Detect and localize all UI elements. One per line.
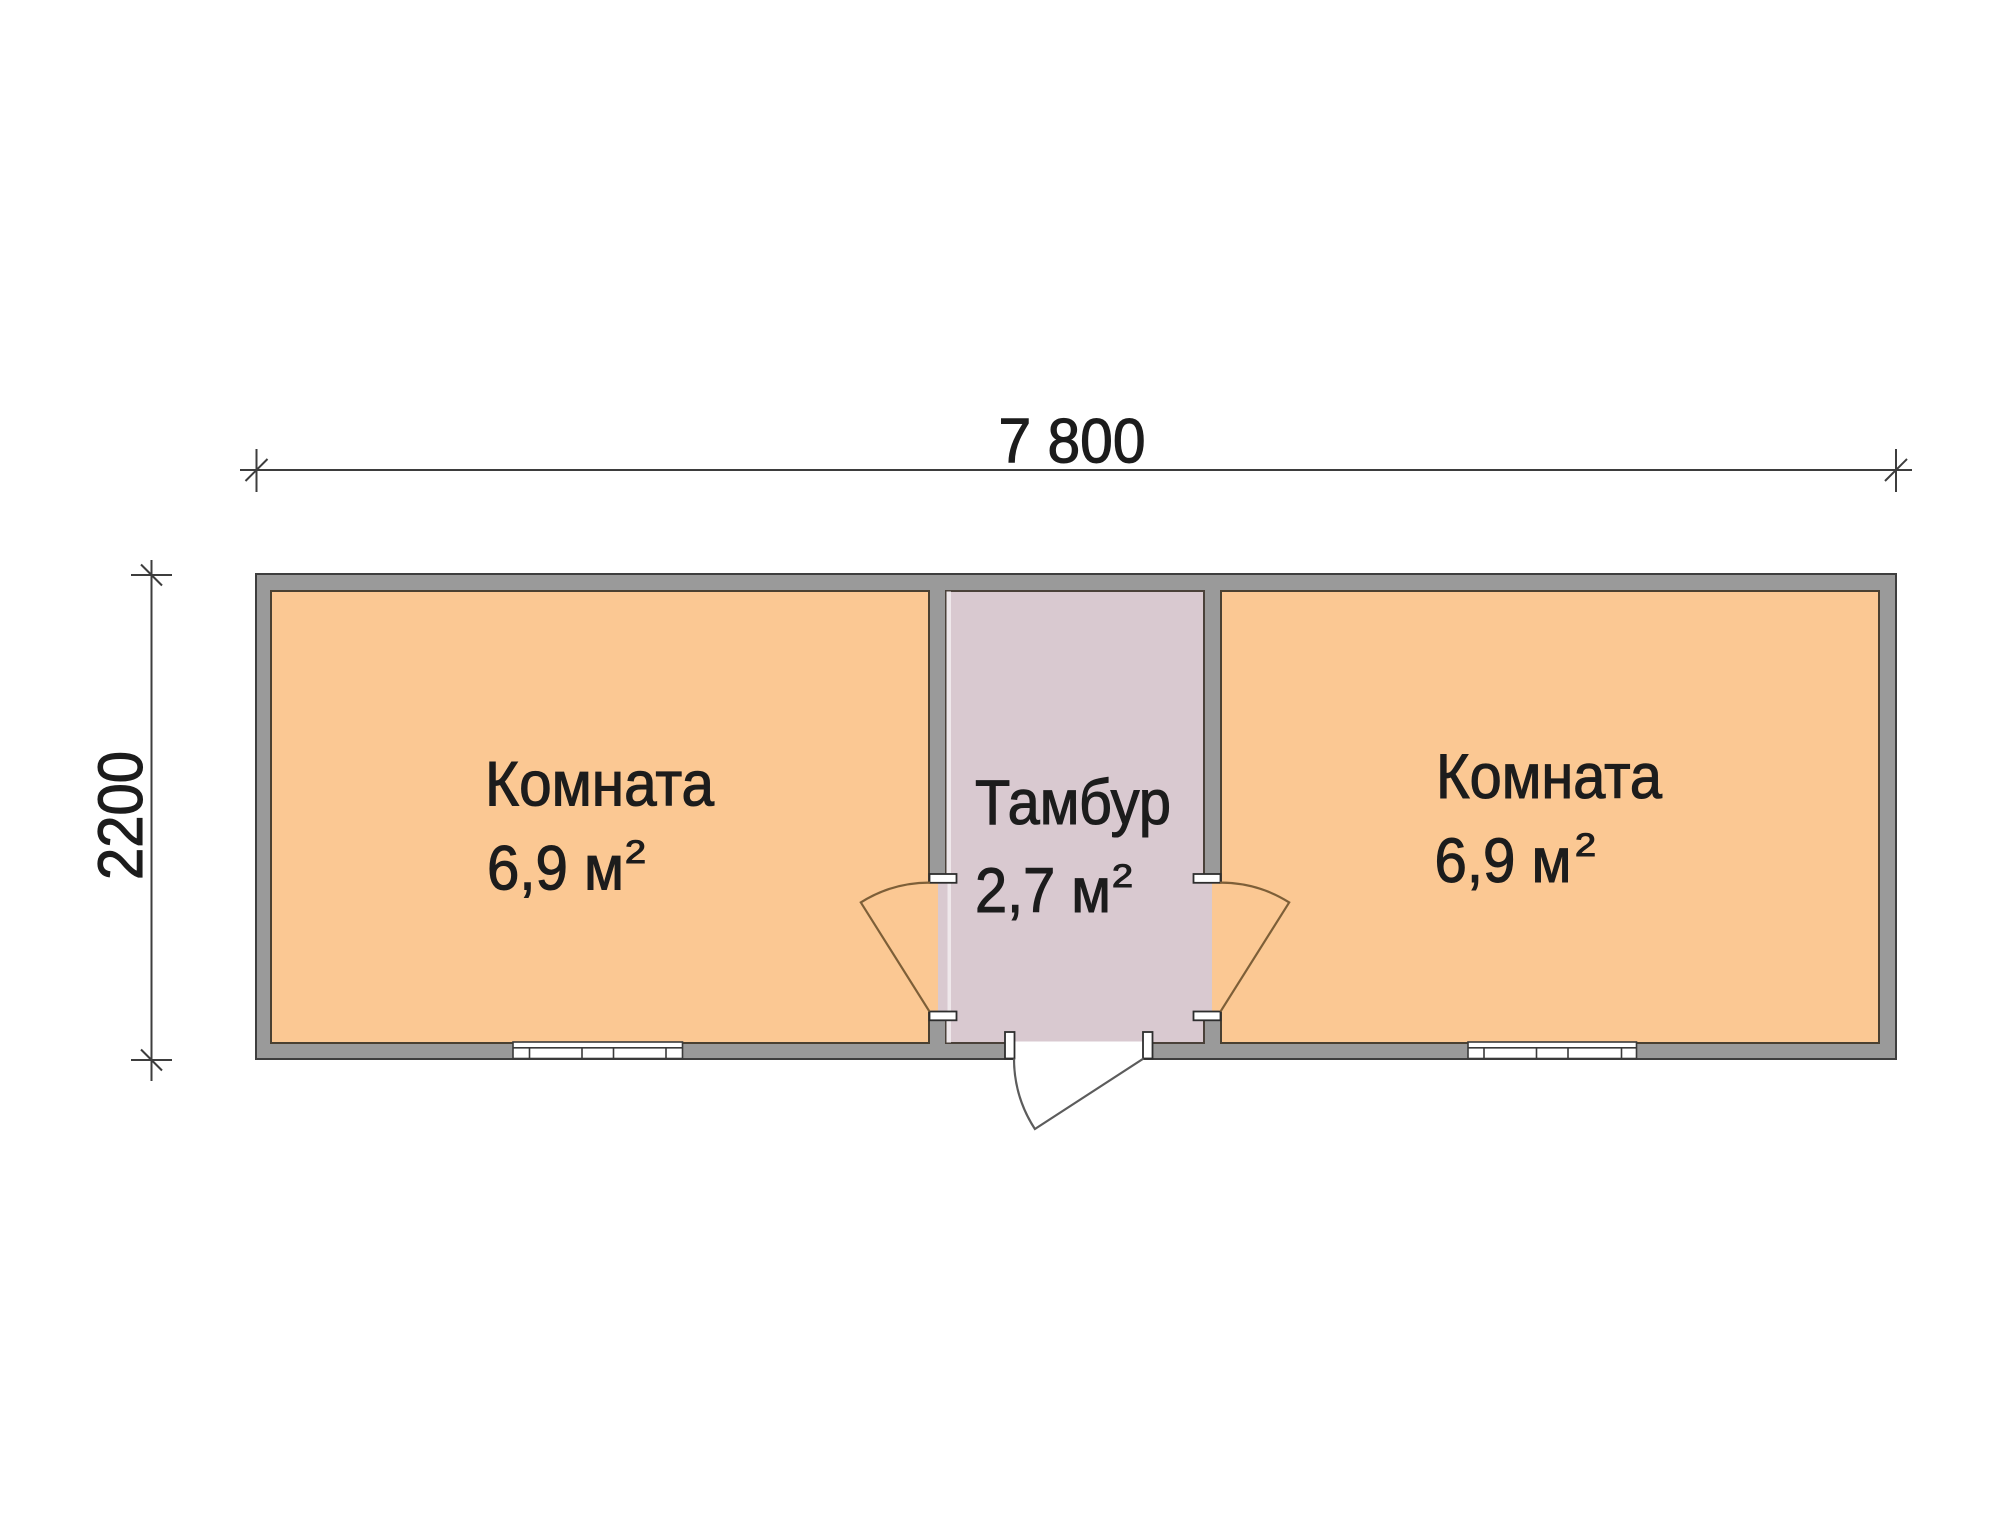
svg-text:2: 2 — [1575, 827, 1596, 863]
svg-text:Тамбур: Тамбур — [975, 768, 1171, 838]
svg-text:2: 2 — [1112, 858, 1133, 894]
svg-text:6,9 м: 6,9 м — [487, 834, 624, 904]
svg-text:7 800: 7 800 — [999, 407, 1146, 477]
svg-text:2200: 2200 — [86, 751, 156, 880]
svg-text:2: 2 — [625, 834, 646, 870]
svg-text:6,9 м: 6,9 м — [1435, 826, 1572, 896]
svg-text:2,7 м: 2,7 м — [975, 856, 1111, 926]
svg-text:Комната: Комната — [485, 750, 715, 820]
svg-text:Комната: Комната — [1436, 742, 1663, 812]
